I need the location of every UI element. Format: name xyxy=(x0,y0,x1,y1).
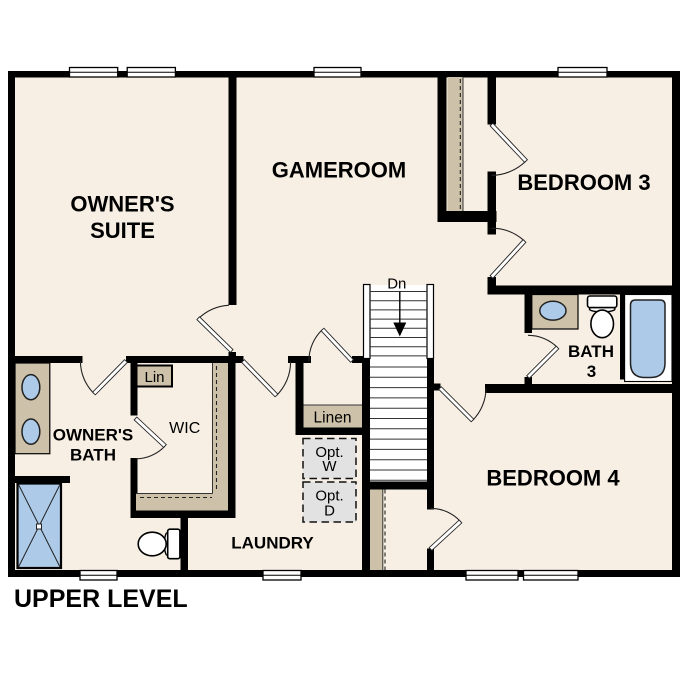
svg-text:WIC: WIC xyxy=(169,420,200,437)
svg-text:W: W xyxy=(322,458,337,475)
svg-text:OWNER'S: OWNER'S xyxy=(70,192,174,217)
svg-text:Lin: Lin xyxy=(144,369,164,386)
svg-text:OWNER'S: OWNER'S xyxy=(53,426,134,445)
svg-text:Dn: Dn xyxy=(387,276,406,293)
svg-text:Linen: Linen xyxy=(314,410,352,427)
svg-text:UPPER LEVEL: UPPER LEVEL xyxy=(14,585,188,613)
svg-text:SUITE: SUITE xyxy=(90,218,155,243)
svg-text:LAUNDRY: LAUNDRY xyxy=(231,534,314,553)
svg-text:BEDROOM 4: BEDROOM 4 xyxy=(486,466,620,491)
svg-text:BATH: BATH xyxy=(70,446,116,465)
svg-text:BATH: BATH xyxy=(568,342,614,361)
svg-text:GAMEROOM: GAMEROOM xyxy=(272,158,406,183)
svg-text:3: 3 xyxy=(587,362,596,381)
svg-text:D: D xyxy=(324,503,335,520)
svg-text:BEDROOM 3: BEDROOM 3 xyxy=(517,170,650,195)
